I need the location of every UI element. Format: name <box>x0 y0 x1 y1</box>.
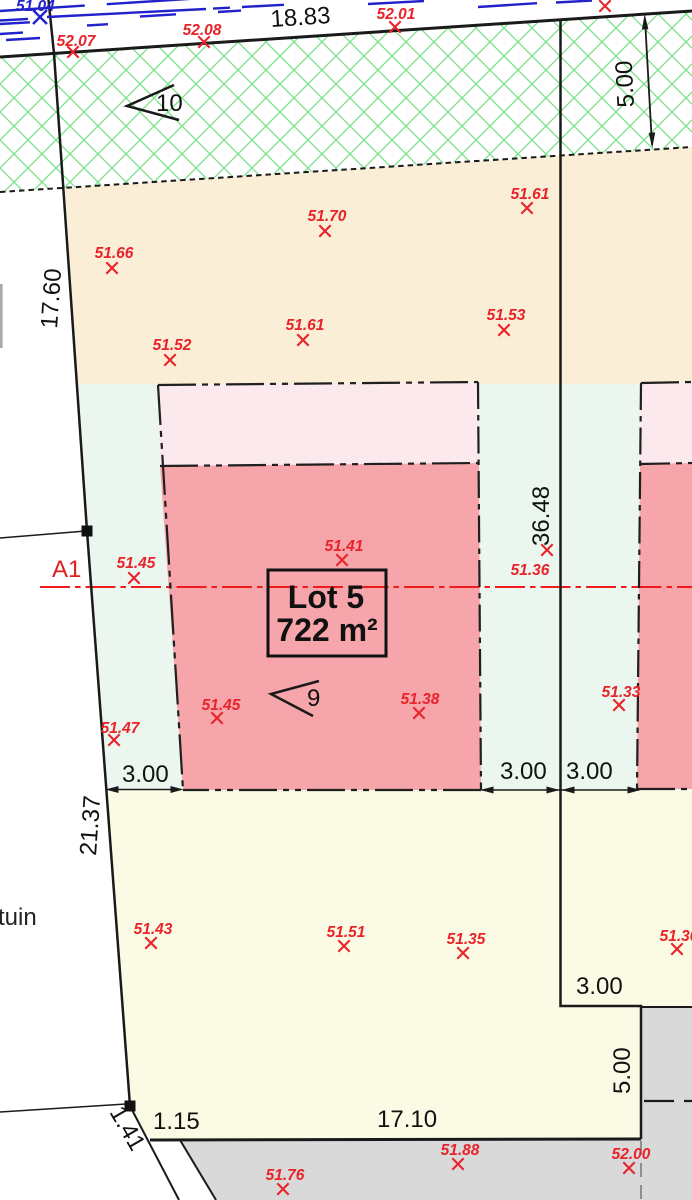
svg-text:51.41: 51.41 <box>325 538 364 555</box>
svg-text:52.01: 52.01 <box>377 6 416 23</box>
svg-text:3.00: 3.00 <box>500 758 547 785</box>
svg-text:52.00: 52.00 <box>612 1146 651 1163</box>
svg-text:51.52: 51.52 <box>153 337 192 354</box>
svg-text:5.00: 5.00 <box>609 1047 636 1094</box>
svg-text:Lot 5: Lot 5 <box>288 579 364 615</box>
svg-text:51.66: 51.66 <box>95 245 134 262</box>
svg-text:52.08: 52.08 <box>183 22 222 39</box>
svg-text:51.30: 51.30 <box>660 928 692 945</box>
svg-text:A1: A1 <box>52 556 81 583</box>
svg-text:51.38: 51.38 <box>401 691 440 708</box>
svg-text:51.76: 51.76 <box>266 1167 305 1184</box>
svg-text:3.00: 3.00 <box>576 973 623 1000</box>
svg-text:722 m²: 722 m² <box>276 612 377 648</box>
svg-text:1.15: 1.15 <box>153 1108 200 1135</box>
svg-text:21.37: 21.37 <box>75 795 106 857</box>
svg-text:17.10: 17.10 <box>377 1106 437 1133</box>
svg-text:51.70: 51.70 <box>308 208 347 225</box>
svg-text:3.00: 3.00 <box>122 761 169 788</box>
svg-text:5.00: 5.00 <box>611 60 640 108</box>
svg-text:51.35: 51.35 <box>447 931 486 948</box>
svg-text:51.61: 51.61 <box>286 317 325 334</box>
svg-text:10: 10 <box>156 90 183 117</box>
svg-text:18.83: 18.83 <box>270 2 332 33</box>
svg-text:51.45: 51.45 <box>117 555 156 572</box>
svg-text:51.47: 51.47 <box>101 720 141 737</box>
svg-text:51.36: 51.36 <box>511 562 550 579</box>
svg-text:51.51: 51.51 <box>327 924 366 941</box>
svg-text:51.33: 51.33 <box>602 684 641 701</box>
svg-text:17.60: 17.60 <box>36 268 67 330</box>
svg-text:51.53: 51.53 <box>487 307 526 324</box>
svg-text:51.61: 51.61 <box>511 186 550 203</box>
svg-text:51.43: 51.43 <box>134 921 173 938</box>
svg-text:51.45: 51.45 <box>202 697 241 714</box>
svg-text:tuin: tuin <box>0 904 37 931</box>
svg-text:3.00: 3.00 <box>566 758 613 785</box>
svg-text:9: 9 <box>307 685 320 712</box>
svg-text:36.48: 36.48 <box>528 486 555 546</box>
svg-text:51.88: 51.88 <box>441 1142 480 1159</box>
